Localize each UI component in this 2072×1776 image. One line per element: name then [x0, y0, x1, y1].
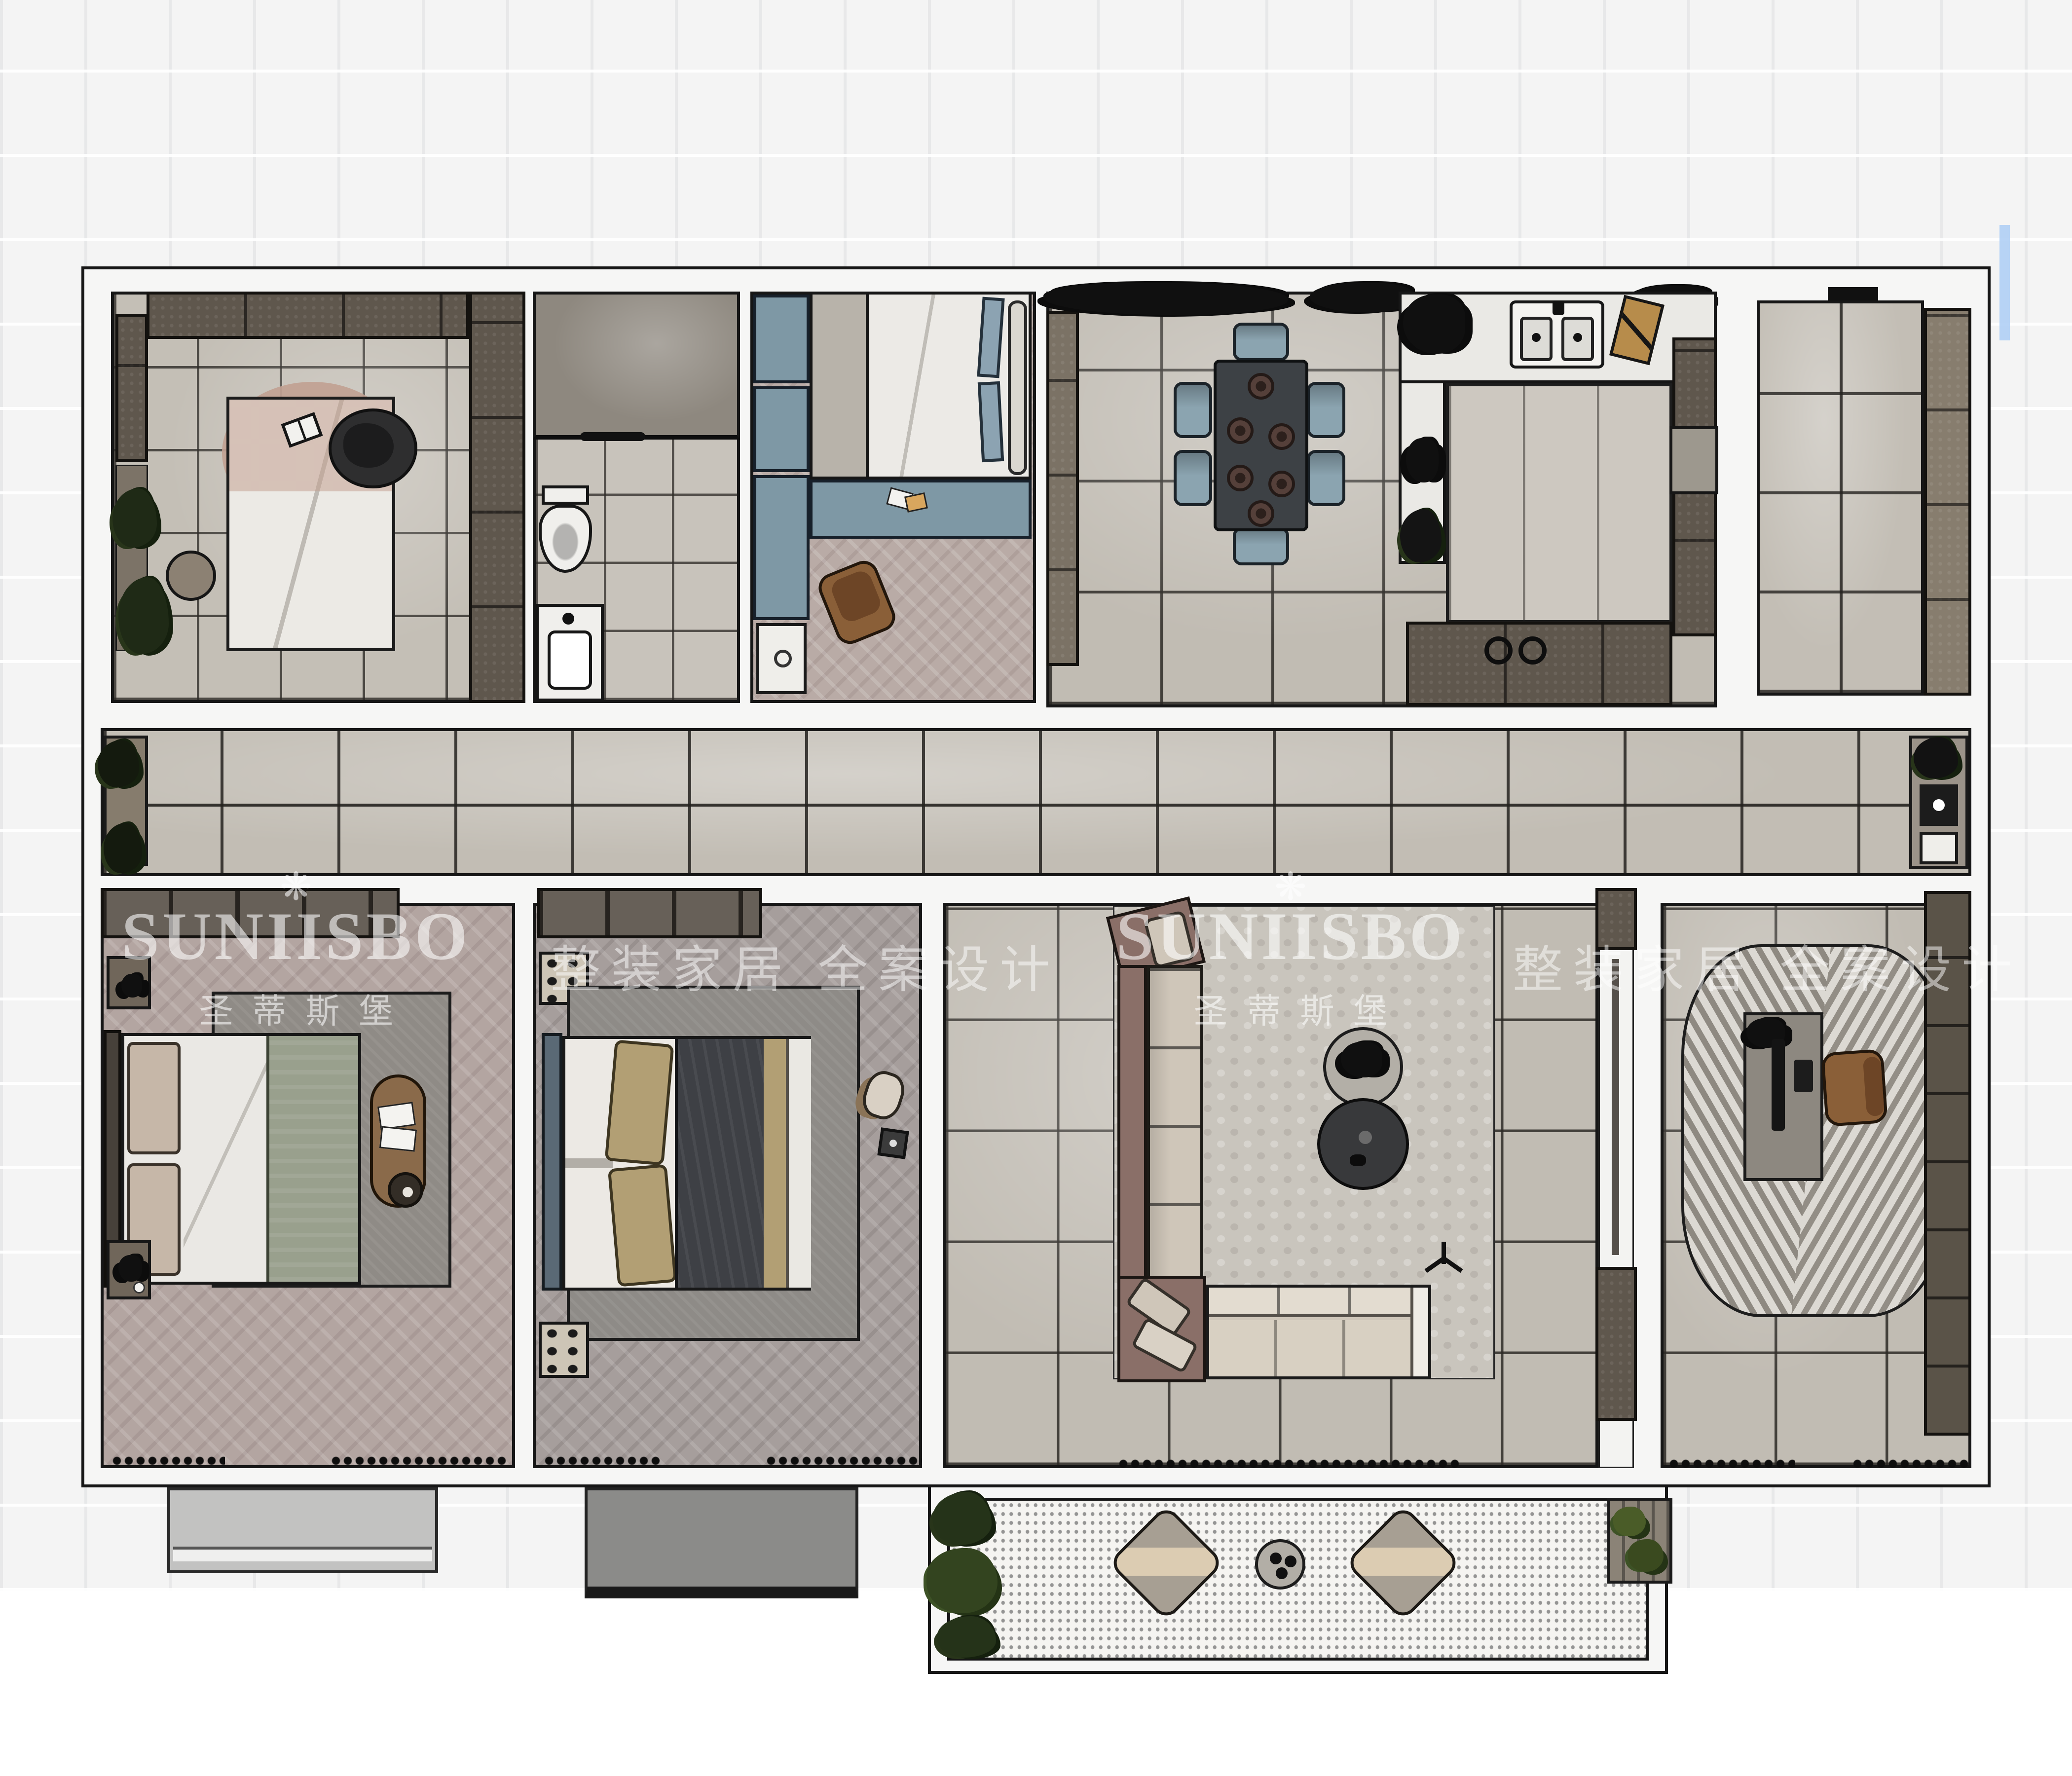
ac-platform-light-band: [173, 1547, 432, 1561]
tatami-plant-icon: [112, 488, 157, 548]
kitchen-herb-plant: [1400, 509, 1442, 562]
second-pillow-tan-2: [608, 1164, 677, 1287]
study-monitor: [1772, 1039, 1785, 1131]
second-photo-frame-dot: [889, 1139, 897, 1147]
coffee-table-dark-item: [1350, 1154, 1366, 1166]
vanity-faucet: [562, 613, 574, 625]
master-nightstand-top: [107, 956, 151, 1009]
sofa-seats-left: [1147, 965, 1203, 1285]
tatami-wardrobe-top: [147, 292, 469, 339]
top-balcony-wall-mark: [1828, 287, 1878, 300]
planter-greens-2: [1628, 1539, 1664, 1572]
coffee-table-plant: [1341, 1042, 1382, 1077]
plate-2: [1227, 417, 1254, 444]
floor-plan-canvas: ❋ SUNIISBO 圣蒂斯堡 整装家居 全案设计 ❋ SUNIISBO 圣蒂斯…: [0, 0, 2072, 1776]
top-balcony-cabinet-strip: [1924, 308, 1971, 696]
study-bookshelf: [1924, 891, 1971, 1436]
blue-room-chair-back: [828, 568, 884, 625]
master-nightstand-bottom: [107, 1240, 151, 1299]
cooktop-burner-right: [1518, 636, 1547, 665]
master-curtain-right: [332, 1453, 509, 1467]
bench-tray: [388, 1172, 423, 1208]
sink-drain-dot-left: [1532, 333, 1541, 342]
dining-chair-left-2: [1174, 450, 1212, 506]
tatami-cabinet-right: [469, 292, 525, 703]
study-curtain-left: [1669, 1456, 1795, 1470]
kitchen-sink: [1510, 300, 1604, 369]
dining-chair-right-1: [1307, 382, 1345, 438]
sofa-horizontal: [1206, 1285, 1431, 1379]
coffee-table-dark-bowl: [1359, 1131, 1372, 1144]
second-bed: [562, 1036, 811, 1291]
second-headboard: [542, 1033, 562, 1291]
corridor-plant-2: [104, 823, 142, 873]
second-sheet-foot: [786, 1039, 811, 1288]
second-nightstand-bottom: [539, 1322, 589, 1378]
washer: [756, 623, 807, 694]
dining-cabinet-left: [1046, 311, 1079, 666]
living-curtain: [1119, 1456, 1459, 1470]
dining-chair-top: [1233, 323, 1289, 361]
tatami-lounge-chair-cushion: [343, 423, 394, 468]
shower-door-handle: [580, 432, 645, 441]
lamp-leg-2: [1424, 1257, 1445, 1273]
balcony-plant-2: [926, 1548, 998, 1613]
second-blanket-tan-strip: [764, 1039, 786, 1288]
tv-cabinet-bottom: [1595, 1267, 1637, 1421]
blue-cabinet-low: [753, 475, 810, 620]
tatami-ottoman: [166, 551, 216, 601]
plate-1: [1248, 373, 1274, 400]
fridge: [1669, 426, 1718, 494]
ac-platform-light: [167, 1487, 438, 1573]
master-bed: [121, 1033, 361, 1285]
dining-chair-bottom: [1233, 527, 1289, 565]
blue-pillow-2: [978, 381, 1004, 462]
sofa-corner-top-cushion: [1144, 910, 1196, 969]
second-curtain-left: [545, 1453, 663, 1467]
master-pillow-1: [127, 1042, 181, 1154]
sofa-back-left: [1117, 965, 1147, 1285]
side-table-cup-2: [1285, 1555, 1296, 1567]
sofa-armrest-right: [1410, 1288, 1428, 1376]
sink-drain-dot-right: [1573, 333, 1582, 342]
tv-panel: [1612, 959, 1619, 1255]
tatami-cabinet-left: [115, 314, 148, 462]
coffee-table-dark: [1317, 1098, 1409, 1190]
planter-greens-1: [1613, 1507, 1646, 1536]
second-curtain-right: [767, 1453, 922, 1467]
master-sheet: [184, 1036, 266, 1282]
entry-dark-box: [1920, 784, 1958, 826]
study-curtain-right: [1853, 1456, 1971, 1470]
balcony-plant-3: [937, 1616, 996, 1658]
master-lamp-bottom: [118, 1255, 142, 1282]
tv-cabinet-top: [1595, 888, 1637, 950]
study-keyboard: [1794, 1060, 1813, 1092]
dining-chair-right-2: [1307, 450, 1345, 506]
shower-area: [533, 292, 740, 440]
entry-dark-box-dot: [1933, 799, 1945, 811]
bench-tray-cup: [403, 1187, 413, 1197]
washer-door-icon: [774, 650, 792, 667]
balcony-plant-1: [932, 1492, 992, 1545]
kitchen-inner-floor: [1446, 383, 1672, 623]
side-table-cup-3: [1276, 1567, 1288, 1579]
master-cup: [133, 1282, 145, 1294]
balcony-planter-right: [1607, 1498, 1672, 1584]
sofa-horizontal-seat: [1209, 1320, 1410, 1376]
second-pillow-white: [565, 1039, 613, 1288]
master-blanket: [266, 1036, 358, 1282]
kitchen-pot-plant: [1403, 295, 1465, 354]
second-pillow-tan-1: [605, 1039, 674, 1166]
study-chair-back: [1863, 1056, 1885, 1116]
plate-6: [1248, 500, 1274, 527]
dining-chair-left-1: [1174, 382, 1212, 438]
tatami-lounge-chair: [329, 408, 417, 488]
master-lamp-top: [121, 974, 142, 998]
toilet-tank: [542, 485, 589, 505]
entry-white-box: [1920, 832, 1958, 864]
study-chair: [1821, 1049, 1888, 1127]
entry-plant: [1914, 737, 1958, 778]
plate-5: [1268, 471, 1295, 497]
bed-bolster: [1008, 300, 1027, 475]
kitchen-base-cabinet-bottom: [1406, 622, 1672, 706]
vanity-sink: [548, 630, 592, 690]
cooktop-burner-left: [1484, 636, 1513, 665]
master-wardrobe: [101, 888, 400, 938]
second-photo-frame: [877, 1127, 909, 1159]
second-wardrobe: [537, 888, 762, 938]
ac-platform-dark: [585, 1487, 858, 1598]
floor-lamp-tripod: [1424, 1240, 1462, 1279]
tatami-plant-icon-2: [118, 577, 169, 654]
blue-bed-headwall: [810, 292, 869, 480]
kitchen-utensils: [1406, 438, 1439, 482]
second-blanket-navy: [675, 1039, 764, 1288]
master-curtain-left: [112, 1453, 225, 1467]
corridor-floor: [101, 728, 1971, 876]
sofa-corner-seat: [1117, 1276, 1206, 1382]
edge-artifact-blue-line: [1999, 225, 2010, 340]
sink-faucet: [1553, 300, 1564, 315]
balcony-side-table: [1255, 1539, 1305, 1590]
blue-cabinet-mid: [753, 386, 810, 472]
top-balcony-floor: [1757, 300, 1924, 696]
blue-wardrobe-tall: [753, 295, 810, 383]
side-table-cup-1: [1270, 1553, 1282, 1564]
corridor-plant: [98, 740, 139, 787]
lamp-leg-3: [1442, 1257, 1463, 1273]
plate-4: [1227, 465, 1254, 491]
sofa-horizontal-back-cushions: [1209, 1288, 1428, 1317]
plate-3: [1268, 423, 1295, 450]
bench-papers-2: [379, 1126, 417, 1151]
